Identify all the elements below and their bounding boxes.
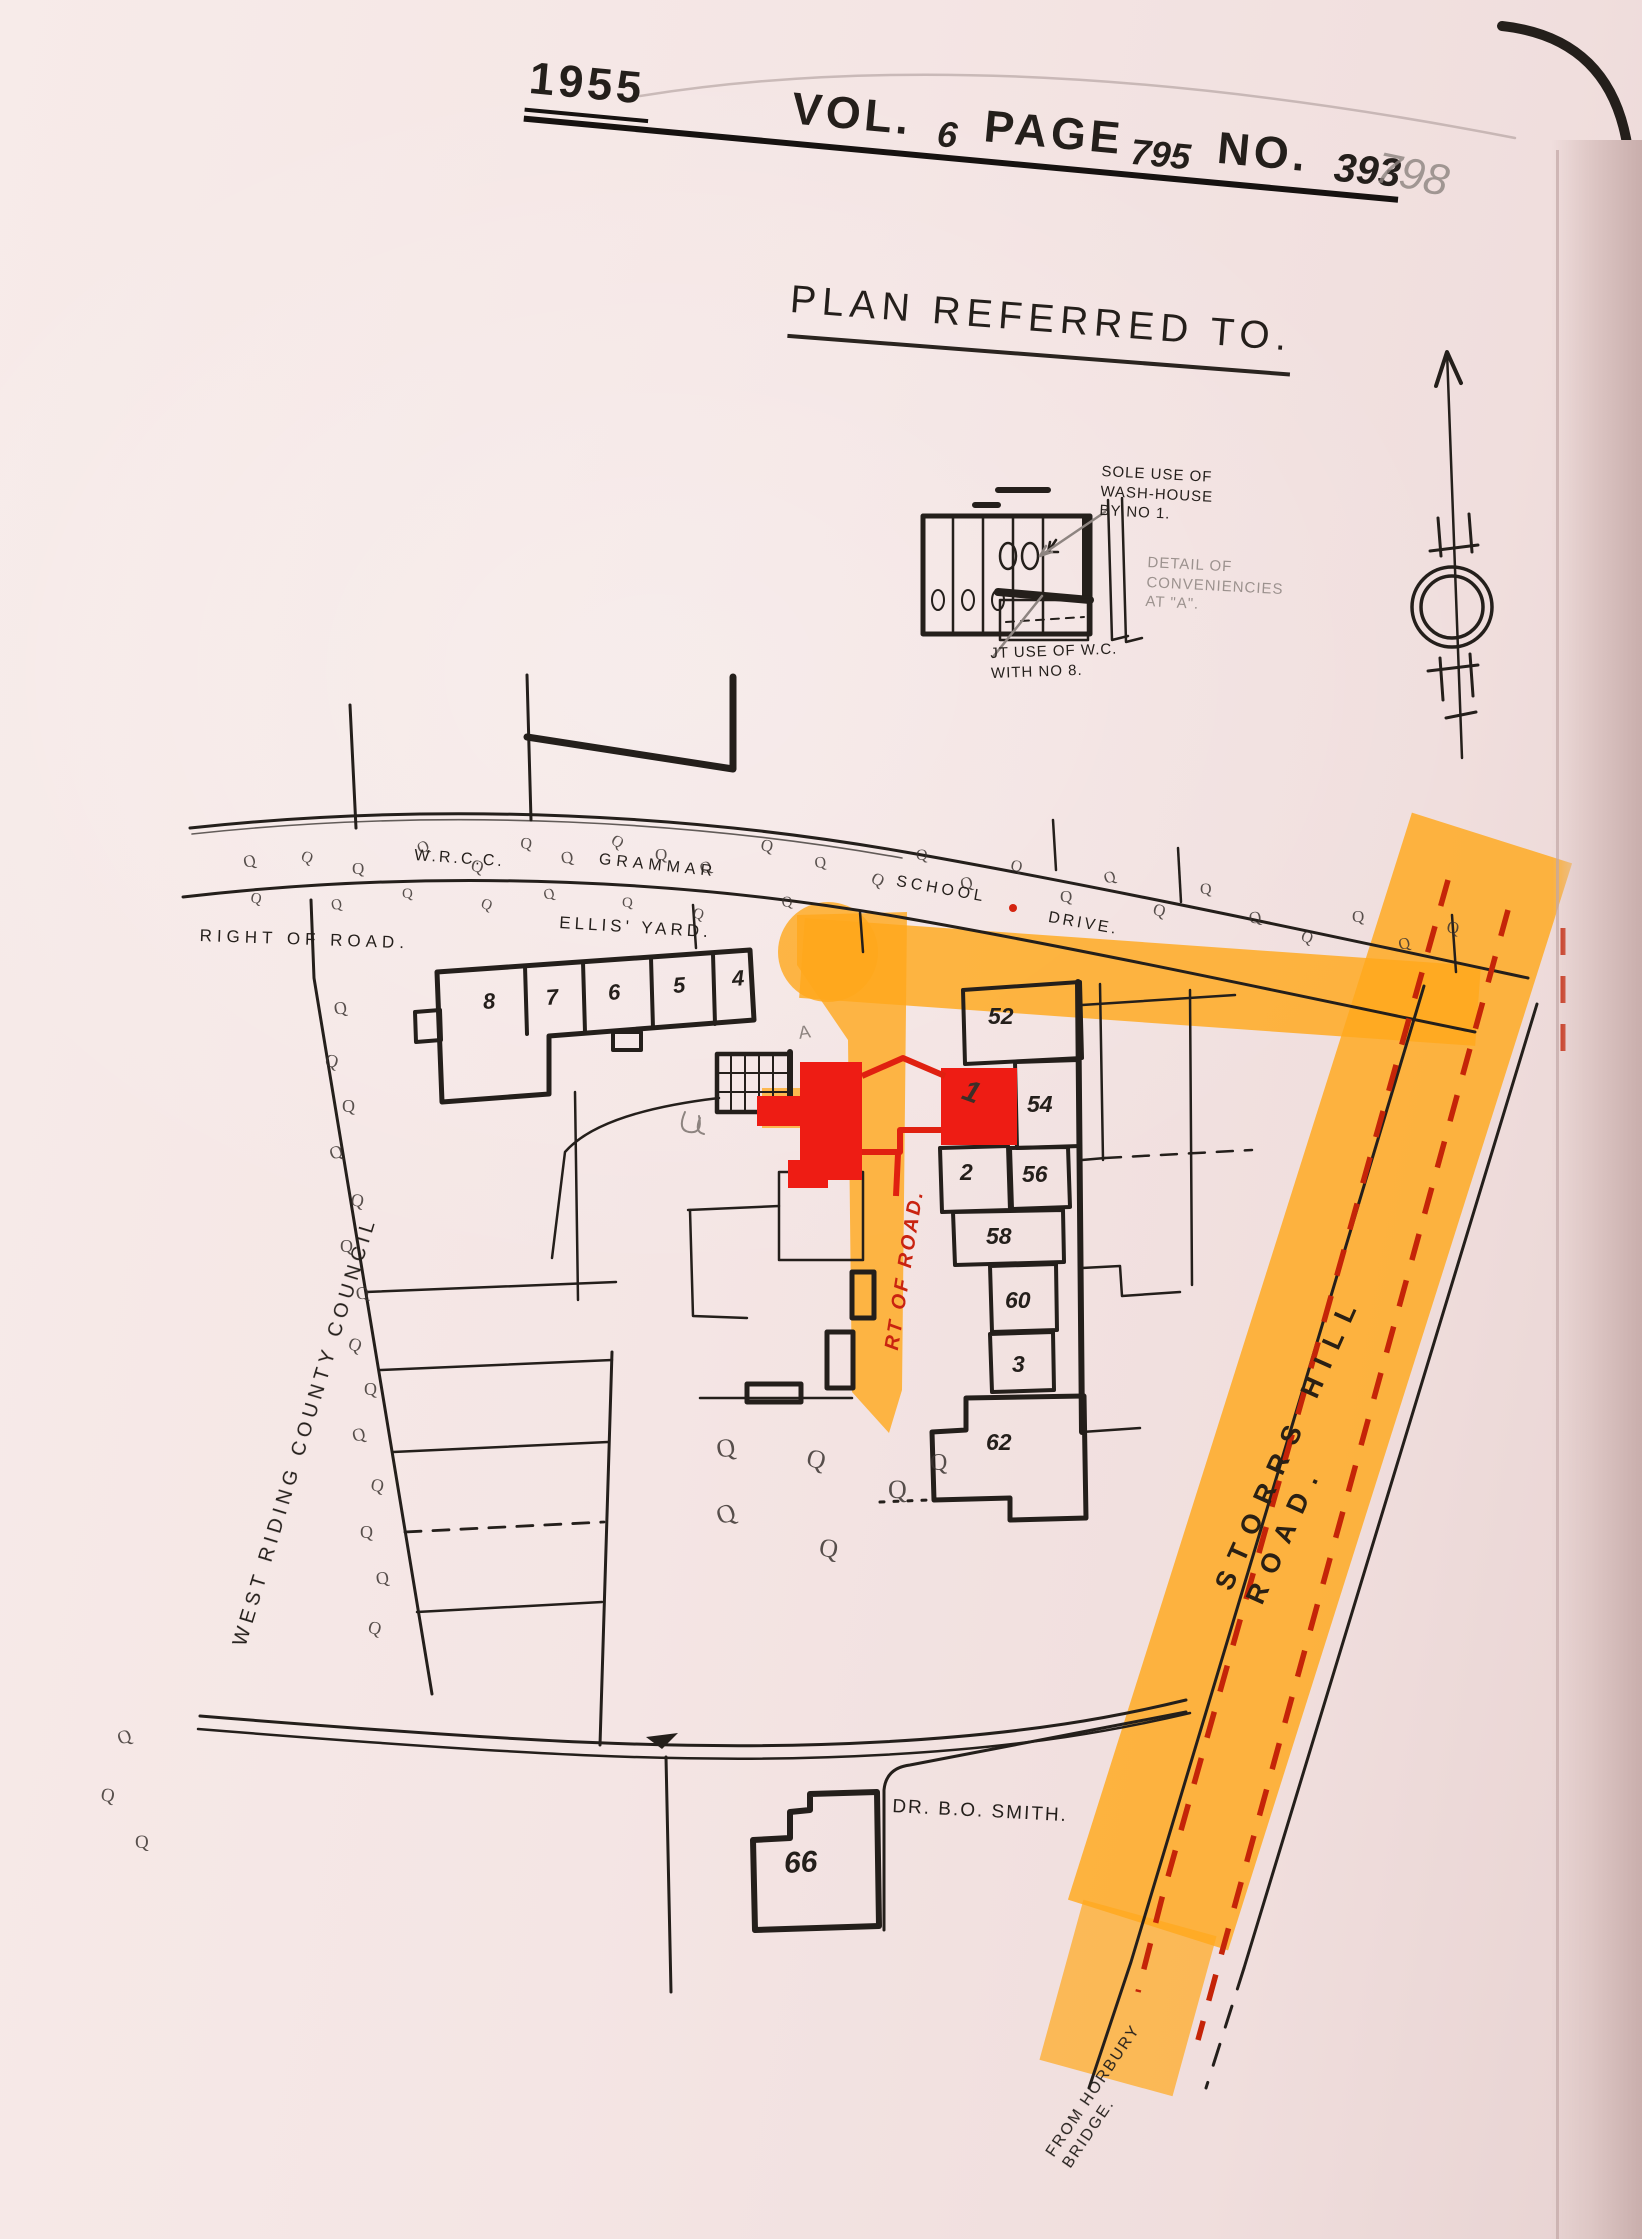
shrub-icon: Q (888, 1475, 907, 1504)
shrub-icon: Q (369, 1474, 385, 1496)
shrub-icon: Q (342, 1096, 355, 1116)
shrub-icon: Q (1151, 900, 1168, 922)
shrub-icon: Q (479, 896, 495, 915)
terrace-left-outline (437, 950, 754, 1102)
orange-marker-roads (762, 838, 1492, 2078)
shrub-icon: Q (332, 997, 348, 1019)
shrub-icon: Q (249, 890, 263, 908)
page-crease (1556, 150, 1559, 2239)
shrub-icon: Q (542, 886, 557, 904)
shrub-icon: Q (352, 859, 364, 878)
shrub-icon: Q (402, 886, 413, 902)
shrub-icon: Q (364, 1379, 377, 1399)
page-value: 795 (1129, 129, 1193, 179)
shrub-icon: Q (814, 854, 827, 872)
shrub-icon: Q (714, 1432, 738, 1464)
page-edge-shadow (1552, 140, 1642, 2239)
shrub-icon: Q (330, 896, 344, 914)
shrub-icon: Q (135, 1832, 149, 1853)
page-corner-mark (1502, 26, 1628, 150)
shrub-icon: Q (803, 1443, 829, 1476)
shrub-icon: Q (608, 832, 627, 853)
page-label: PAGE (982, 98, 1127, 167)
shrub-icon: Q (350, 1423, 368, 1446)
house-number-56: 56 (1022, 1160, 1048, 1189)
shrub-icon: Q (781, 894, 793, 911)
vol-label: VOL. (789, 80, 915, 147)
shrub-icon: Q (930, 1450, 947, 1476)
shrub-icon: Q (360, 1522, 373, 1542)
no-label: NO. (1215, 120, 1312, 185)
shrub-icon: Q (868, 868, 887, 890)
shrub-icon: Q (712, 1497, 740, 1531)
shrub-icon: Q (366, 1617, 384, 1640)
house-number-62: 62 (986, 1428, 1012, 1457)
house-number-8: 8 (482, 987, 496, 1015)
north-arrow-icon (1412, 352, 1492, 758)
shrub-icon: Q (759, 835, 774, 856)
shrub-icon: Q (559, 847, 574, 868)
shrub-icon: Q (1200, 881, 1212, 898)
house-number-5: 5 (672, 971, 686, 999)
joint-use-note: JT USE OF W.C. WITH NO 8. (990, 640, 1118, 683)
shrub-icon: Q (622, 895, 633, 911)
sole-use-note: SOLE USE OF WASH-HOUSE BY NO 1. (1099, 462, 1215, 526)
house-number-4: 4 (731, 964, 745, 992)
shrub-icon: Q (346, 1333, 365, 1356)
house-number-66: 66 (783, 1843, 818, 1882)
year-label: 1955 (524, 50, 653, 123)
shrub-icon: Q (1247, 907, 1262, 928)
shrub-icon: Q (241, 850, 258, 872)
house-number-52: 52 (988, 1002, 1014, 1031)
school-wall (527, 677, 733, 769)
house-number-58: 58 (986, 1222, 1012, 1251)
shrub-icon: Q (299, 848, 316, 868)
vol-value: 6 (935, 111, 959, 158)
lane-arrow (646, 1733, 678, 1749)
shrub-icon: Q (349, 1189, 365, 1211)
shrub-icon: Q (1102, 868, 1119, 888)
scanned-plan-page: QQQQQQQQQQQQQQQQQQQQQQQQQQQQQQQQQQQQQQQQ… (0, 0, 1642, 2239)
shrub-icon: Q (99, 1784, 116, 1807)
terrace-right-outlines (880, 982, 1252, 1520)
plot-number-3: 3 (1012, 1350, 1025, 1379)
shrub-icon: Q (916, 847, 928, 864)
shrub-icon: Q (520, 835, 533, 853)
shrub-icon: Q (817, 1532, 841, 1564)
shrub-icon: Q (1060, 887, 1072, 906)
house-number-60: 60 (1005, 1286, 1031, 1315)
block-62-outline (932, 1396, 1086, 1520)
lane-lower (198, 1713, 1190, 1759)
detail-note: DETAIL OF CONVENIENCIES AT "A". (1145, 553, 1285, 619)
house-number-7: 7 (545, 983, 559, 1011)
plot-number-2: 2 (960, 1158, 973, 1187)
shrub-icon: Q (1352, 907, 1364, 926)
shrub-icon: Q (115, 1725, 135, 1750)
house-number-54: 54 (1027, 1090, 1053, 1119)
house-number-6: 6 (607, 978, 621, 1006)
shrub-icon: Q (374, 1567, 390, 1589)
